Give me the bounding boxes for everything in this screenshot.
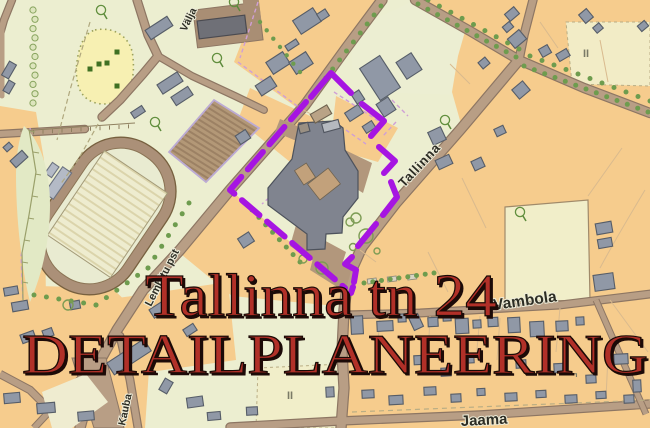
svg-text:II: II [287, 390, 293, 402]
svg-text:Tallinna tn 24: Tallinna tn 24 [145, 263, 497, 329]
svg-text:DETAILPLANEERING: DETAILPLANEERING [22, 324, 648, 386]
svg-text:Jaama: Jaama [460, 411, 508, 428]
svg-text:II: II [583, 48, 589, 60]
